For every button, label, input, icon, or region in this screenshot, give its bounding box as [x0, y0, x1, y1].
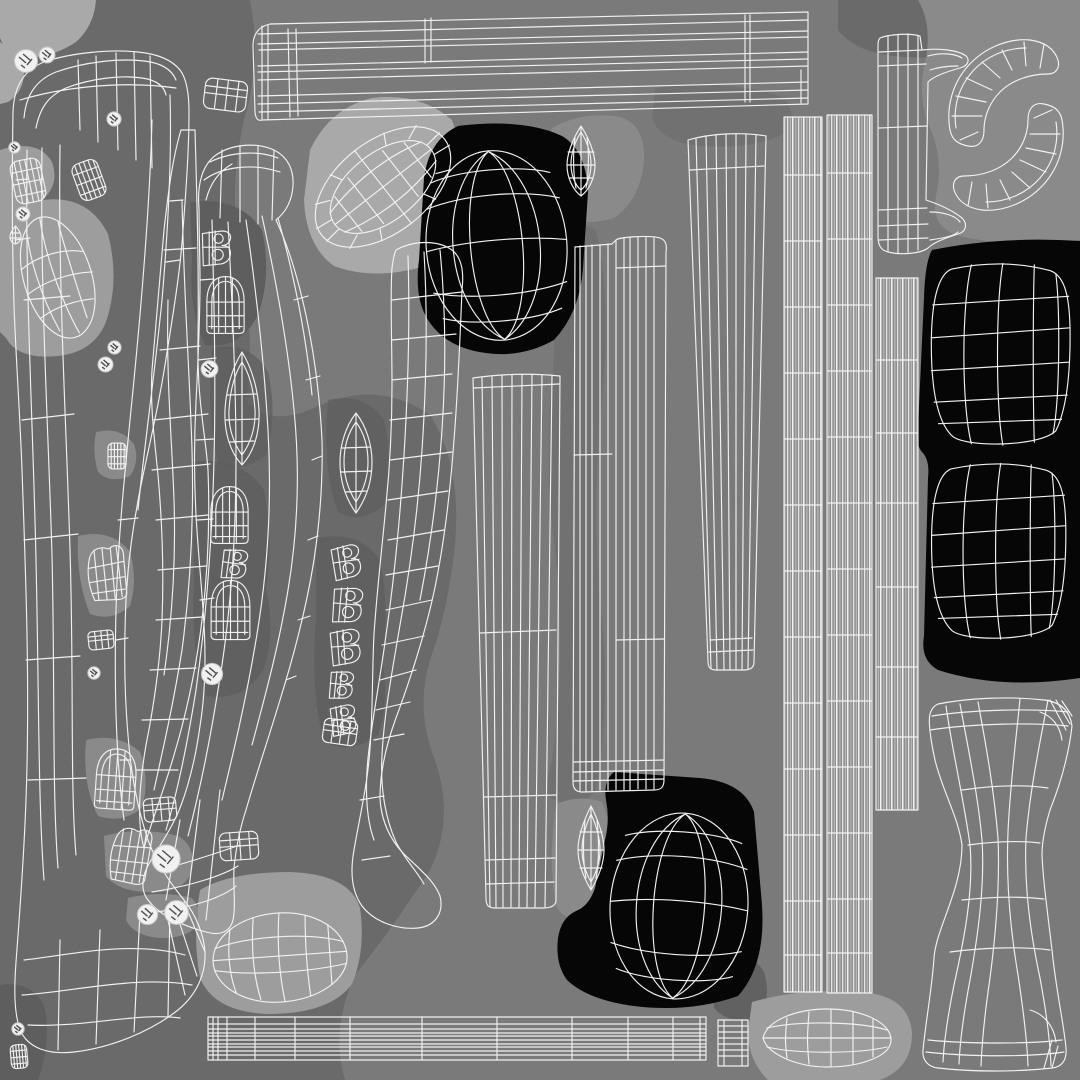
eyelet-piece	[39, 47, 55, 63]
eyelet-piece	[108, 341, 121, 354]
eyelet-piece	[16, 207, 30, 221]
island-dense-strip-a	[784, 117, 822, 992]
uv-layout-canvas	[0, 0, 1080, 1080]
eyelet-piece	[12, 1023, 24, 1035]
uv-texture-sheet	[0, 0, 1080, 1080]
eyelet-piece	[9, 142, 21, 154]
eyelet-piece	[152, 845, 180, 873]
eyelet-piece	[107, 112, 121, 126]
eyelet-piece	[98, 357, 113, 372]
eyelet-piece	[137, 904, 157, 924]
island-dense-strip-c	[876, 278, 918, 810]
eyelet-piece	[201, 361, 218, 378]
island-dense-strip-b	[827, 115, 872, 993]
eyelet-piece	[201, 663, 222, 684]
eyelet-piece	[15, 50, 38, 73]
eyelet-piece	[88, 667, 100, 679]
eyelet-piece	[165, 901, 189, 925]
